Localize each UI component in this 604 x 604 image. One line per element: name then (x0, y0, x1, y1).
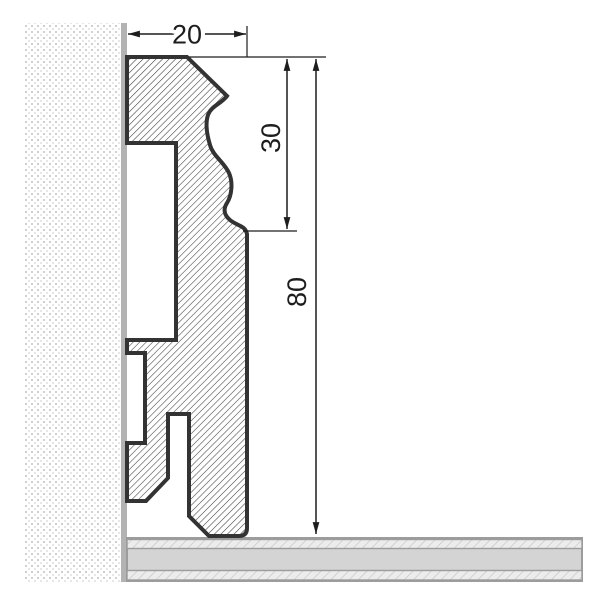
floor-top-strip (127, 540, 582, 549)
wall-stipple-area (25, 23, 121, 582)
skirting-profile-drawing: 20 30 80 (0, 0, 604, 604)
wall-section (25, 23, 127, 582)
floor-section (127, 538, 582, 581)
dimension-label-upper-height: 30 (256, 123, 286, 153)
dimension-label-total-height: 80 (282, 277, 312, 307)
skirting-profile-outline (127, 57, 247, 536)
dimension-label-width: 20 (172, 20, 202, 50)
dimension-width: 20 (128, 20, 247, 57)
technical-drawing: 20 30 80 (0, 0, 604, 604)
floor-bottom-strip (127, 571, 582, 581)
